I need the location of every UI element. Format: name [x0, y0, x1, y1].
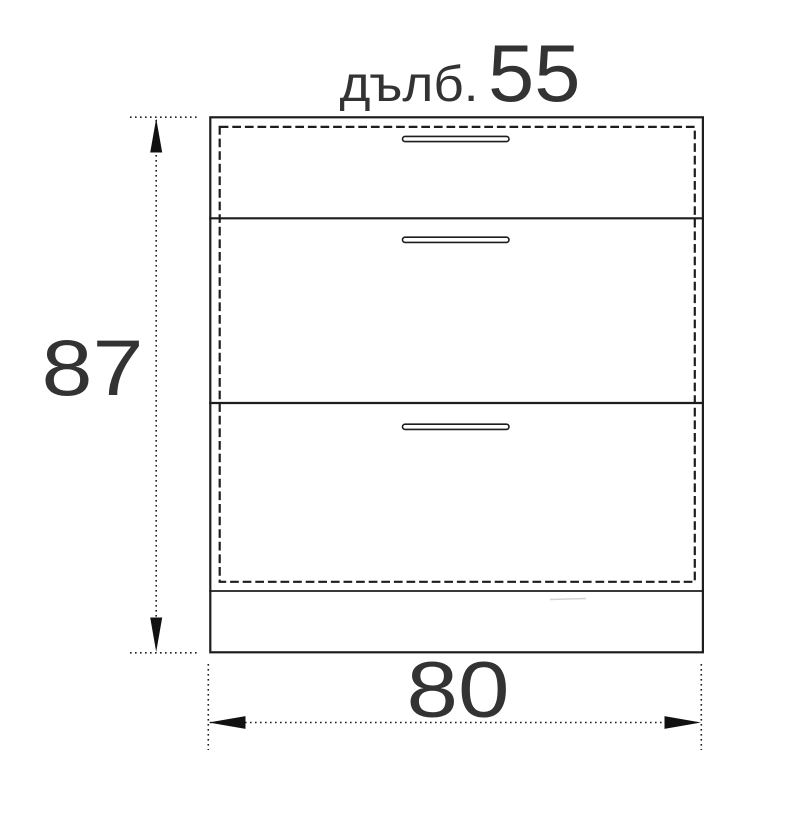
svg-text:80: 80 [407, 645, 510, 734]
svg-text:дълб.: дълб. [340, 56, 479, 112]
svg-text:87: 87 [42, 323, 144, 412]
svg-text:55: 55 [488, 29, 581, 119]
